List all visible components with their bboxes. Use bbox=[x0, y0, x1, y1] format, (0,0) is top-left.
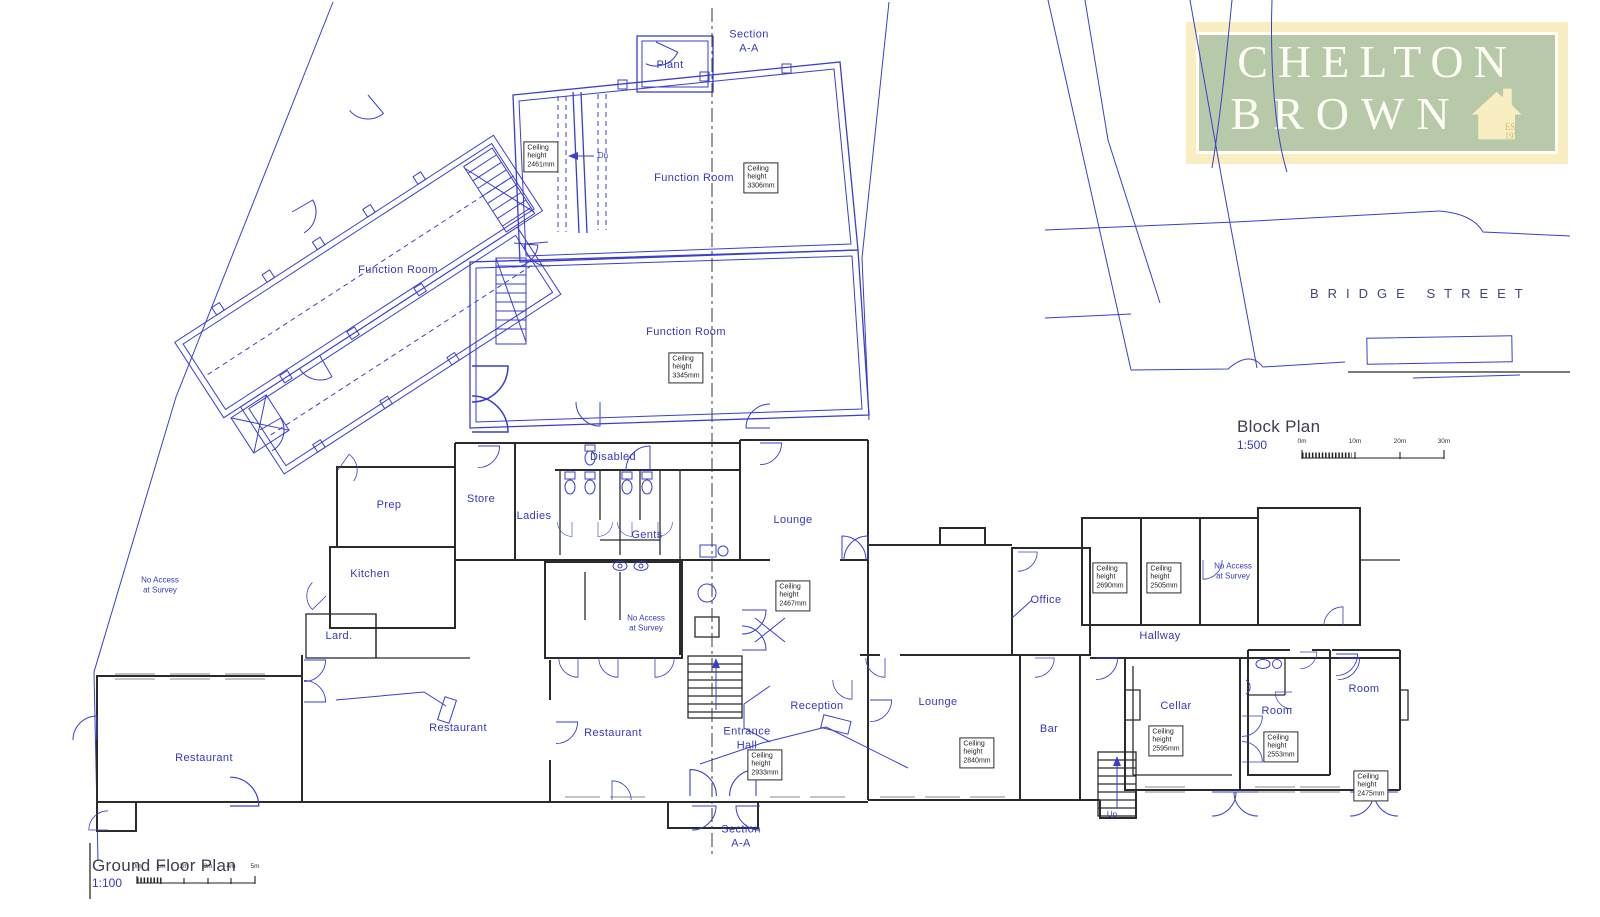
ground-floor-plan-scale: 1:100 bbox=[92, 876, 122, 890]
block-plan-lines bbox=[1045, 0, 1570, 378]
floor-plan-drawing bbox=[0, 0, 1600, 917]
block-plan-scale: 1:500 bbox=[1237, 438, 1267, 452]
block-plan-title: Block Plan bbox=[1237, 417, 1320, 437]
main-floor-walls bbox=[90, 440, 1408, 899]
ground-floor-scale-bar bbox=[137, 876, 255, 884]
street-label: BRIDGE STREET bbox=[1310, 286, 1532, 301]
site-boundary bbox=[94, 2, 889, 860]
function-rooms bbox=[470, 36, 869, 428]
left-wing bbox=[170, 128, 586, 485]
block-plan-scale-bar bbox=[1302, 450, 1444, 459]
window-marks bbox=[115, 674, 1340, 797]
ground-floor-plan-title: Ground Floor Plan bbox=[92, 856, 236, 876]
